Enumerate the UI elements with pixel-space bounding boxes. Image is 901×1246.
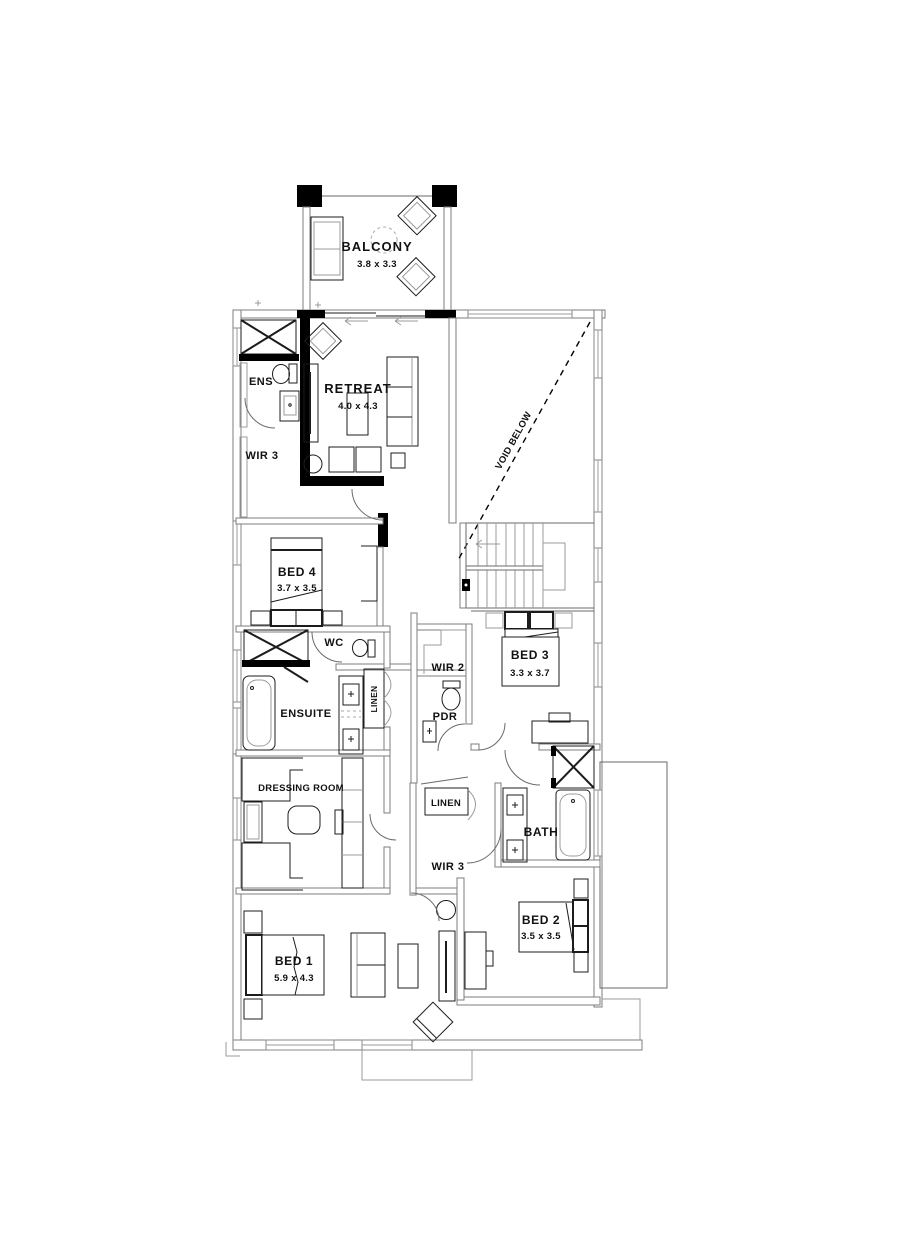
room-dims: 5.9 x 4.3 bbox=[274, 973, 314, 984]
window bbox=[594, 330, 602, 378]
floor-plan-page: BALCONY 3.8 x 3.3 bbox=[0, 0, 901, 1246]
washbasin-icon bbox=[423, 721, 436, 742]
desk-icon bbox=[361, 546, 377, 601]
window bbox=[266, 1040, 334, 1050]
room-label: ENS bbox=[249, 376, 273, 388]
desk-icon bbox=[532, 713, 588, 743]
room-dims: 3.7 x 3.5 bbox=[277, 583, 317, 594]
vanity-icon bbox=[280, 391, 299, 421]
sofa-icon bbox=[387, 357, 418, 446]
bedside-table-icon bbox=[244, 999, 262, 1019]
ottoman-icon bbox=[329, 447, 405, 472]
survey-cross bbox=[255, 300, 261, 306]
room-label: BALCONY bbox=[341, 239, 412, 254]
dressing-room: DRESSING ROOM bbox=[242, 758, 363, 890]
wardrobe-icon bbox=[242, 758, 303, 801]
shower-icon bbox=[239, 320, 299, 361]
bathtub-icon bbox=[243, 676, 275, 750]
bedside-table-icon bbox=[323, 611, 342, 625]
room-label: BATH bbox=[524, 825, 559, 839]
room-dims: 3.8 x 3.3 bbox=[357, 259, 397, 270]
floor-plan-canvas: BALCONY 3.8 x 3.3 bbox=[0, 0, 901, 1246]
shower-icon bbox=[242, 630, 310, 682]
bifold-door bbox=[384, 671, 391, 726]
door-swing bbox=[438, 724, 465, 751]
vanity-icon bbox=[339, 676, 363, 754]
porch-roof-outline bbox=[362, 1050, 472, 1080]
bed4: BED 4 3.7 x 3.5 bbox=[251, 538, 377, 626]
room-dims: 3.3 x 3.7 bbox=[510, 668, 550, 679]
armchair-icon bbox=[413, 1002, 453, 1042]
window bbox=[594, 548, 602, 582]
wir3-lower: WIR 3 bbox=[431, 861, 464, 873]
wardrobe-icon bbox=[335, 758, 363, 888]
bench-icon bbox=[244, 802, 262, 842]
bifold-door bbox=[468, 790, 476, 820]
bedside-table-icon bbox=[574, 879, 588, 898]
window bbox=[594, 460, 602, 512]
window bbox=[594, 790, 602, 856]
sofa-icon bbox=[351, 933, 385, 997]
room-label: WIR 3 bbox=[245, 450, 278, 462]
armchair-icon bbox=[305, 323, 342, 360]
bathtub-icon bbox=[556, 790, 590, 860]
sofa-icon bbox=[311, 217, 343, 280]
stairs-icon bbox=[462, 523, 594, 608]
bed2: BED 2 3.5 x 3.5 bbox=[465, 879, 588, 989]
post bbox=[297, 185, 322, 207]
bedside-table-icon bbox=[486, 613, 503, 628]
room-label: BED 1 bbox=[275, 954, 313, 968]
room-label: BED 4 bbox=[278, 565, 316, 579]
bed-icon bbox=[251, 538, 342, 626]
room-label: BED 3 bbox=[511, 648, 549, 662]
room-dims: 4.0 x 4.3 bbox=[338, 401, 378, 412]
eave-line bbox=[602, 999, 640, 1040]
survey-cross bbox=[315, 302, 321, 308]
wc: WC bbox=[324, 637, 375, 657]
armchair-icon bbox=[397, 258, 435, 296]
room-label: WIR 2 bbox=[431, 662, 464, 674]
room-dims: 3.5 x 3.5 bbox=[521, 931, 561, 942]
wardrobe-icon bbox=[242, 843, 303, 890]
bed3: BED 3 3.3 x 3.7 bbox=[486, 612, 588, 743]
tv-unit-icon bbox=[439, 931, 455, 1001]
linen-hall: LINEN bbox=[421, 777, 468, 815]
island-icon bbox=[288, 806, 320, 834]
window bbox=[233, 798, 241, 840]
round-table-icon bbox=[437, 901, 456, 920]
linen-ensuite: LINEN bbox=[364, 669, 391, 728]
room-label: RETREAT bbox=[324, 381, 391, 396]
room-label: BED 2 bbox=[522, 913, 560, 927]
window bbox=[233, 521, 241, 565]
room-label: DRESSING ROOM bbox=[258, 783, 344, 794]
door-swing bbox=[411, 893, 439, 921]
bedside-table-icon bbox=[555, 613, 572, 628]
room-label: WC bbox=[324, 637, 343, 649]
desk-icon bbox=[465, 932, 493, 989]
linen-label: LINEN bbox=[431, 798, 461, 809]
bath: BATH bbox=[503, 746, 594, 862]
post bbox=[432, 185, 457, 207]
bedside-table-icon bbox=[574, 952, 588, 972]
room-label: PDR bbox=[433, 711, 458, 723]
roof-below-outline bbox=[600, 762, 667, 988]
window bbox=[233, 650, 241, 702]
ensuite: ENSUITE bbox=[242, 630, 363, 754]
door-swing bbox=[245, 398, 275, 428]
void-label: VOID BELOW bbox=[493, 410, 534, 472]
wir2: WIR 2 bbox=[424, 630, 466, 674]
balcony: BALCONY 3.8 x 3.3 bbox=[297, 185, 457, 310]
toilet-icon bbox=[273, 364, 298, 384]
door-swing bbox=[505, 750, 540, 785]
window bbox=[468, 310, 572, 318]
room-label: ENSUITE bbox=[280, 708, 331, 720]
bedside-table-icon bbox=[251, 611, 270, 625]
side-table-icon bbox=[398, 944, 418, 988]
toilet-icon bbox=[442, 681, 460, 710]
toilet-icon bbox=[353, 640, 376, 658]
bedside-table-icon bbox=[244, 911, 262, 933]
ens: ENS bbox=[239, 320, 299, 421]
linen-label: LINEN bbox=[369, 686, 379, 713]
door-swing bbox=[478, 723, 505, 750]
door-swing bbox=[370, 814, 396, 840]
armchair-icon bbox=[398, 197, 436, 235]
coffee-table-icon bbox=[347, 393, 368, 435]
pdr: PDR bbox=[423, 681, 460, 742]
bed1: BED 1 5.9 x 4.3 bbox=[244, 901, 456, 1042]
window bbox=[594, 643, 602, 687]
retreat: RETREAT 4.0 x 4.3 bbox=[304, 323, 418, 473]
window bbox=[233, 708, 241, 754]
room-label: WIR 3 bbox=[431, 861, 464, 873]
window bbox=[362, 1040, 412, 1050]
shower-icon bbox=[551, 746, 594, 788]
